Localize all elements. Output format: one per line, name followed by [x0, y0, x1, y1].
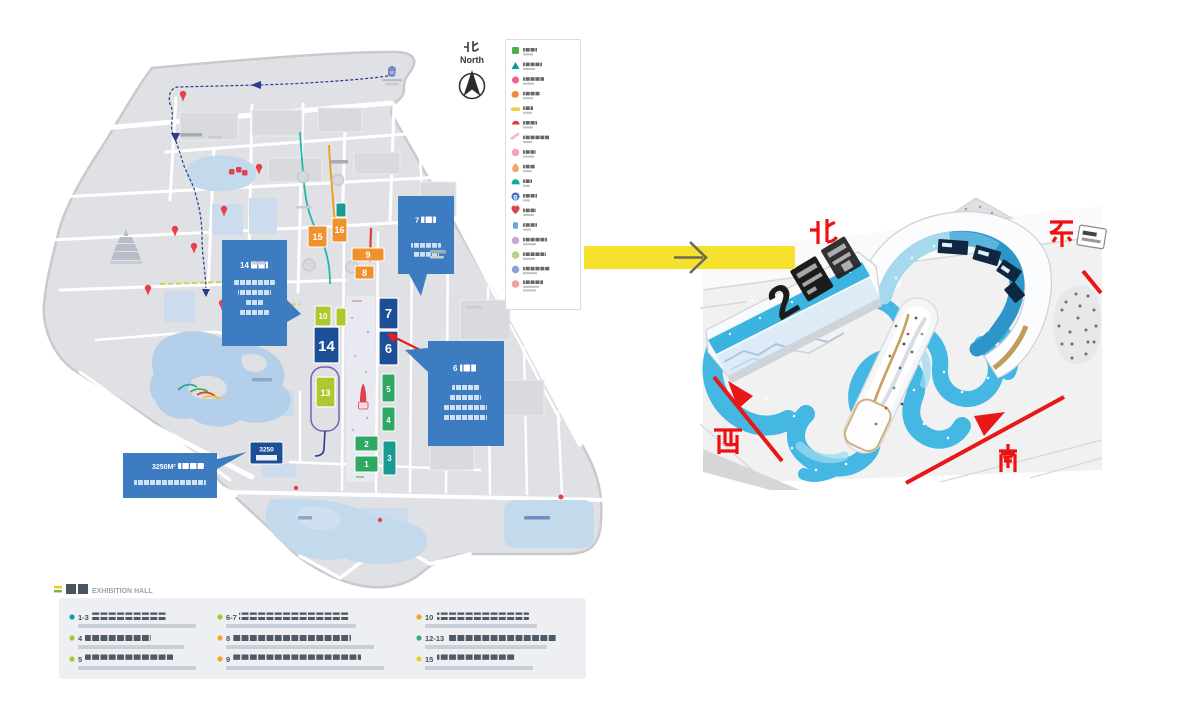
- svg-text:9: 9: [365, 250, 370, 260]
- svg-text:10: 10: [425, 613, 433, 622]
- svg-text:B: B: [513, 195, 518, 201]
- svg-text:EXHIBITION HALL: EXHIBITION HALL: [92, 588, 153, 595]
- svg-text:3250M²: 3250M²: [152, 464, 176, 471]
- svg-text:9: 9: [226, 655, 230, 664]
- svg-text:6: 6: [385, 341, 392, 356]
- svg-text:1: 1: [364, 460, 369, 469]
- svg-text:15: 15: [425, 655, 433, 664]
- svg-text:8: 8: [362, 268, 367, 278]
- svg-text:3250: 3250: [259, 447, 274, 454]
- svg-text:North: North: [460, 55, 484, 65]
- svg-text:7: 7: [415, 216, 419, 225]
- svg-text:3: 3: [387, 454, 392, 463]
- svg-text:16: 16: [334, 225, 344, 235]
- svg-text:15: 15: [312, 232, 322, 242]
- svg-text:6-7: 6-7: [226, 613, 237, 622]
- svg-text:5: 5: [78, 655, 82, 664]
- svg-text:10: 10: [319, 312, 328, 321]
- svg-text:6: 6: [453, 364, 458, 373]
- svg-text:4: 4: [78, 634, 83, 643]
- svg-text:14: 14: [318, 338, 335, 355]
- svg-text:12-13: 12-13: [425, 634, 444, 643]
- svg-text:13: 13: [320, 388, 330, 398]
- svg-text:2: 2: [364, 440, 369, 449]
- svg-text:14: 14: [240, 261, 249, 270]
- svg-text:5: 5: [386, 385, 391, 394]
- svg-text:7: 7: [385, 306, 392, 321]
- svg-text:8: 8: [226, 634, 230, 643]
- svg-text:4: 4: [386, 416, 391, 425]
- svg-text:1-3: 1-3: [78, 613, 89, 622]
